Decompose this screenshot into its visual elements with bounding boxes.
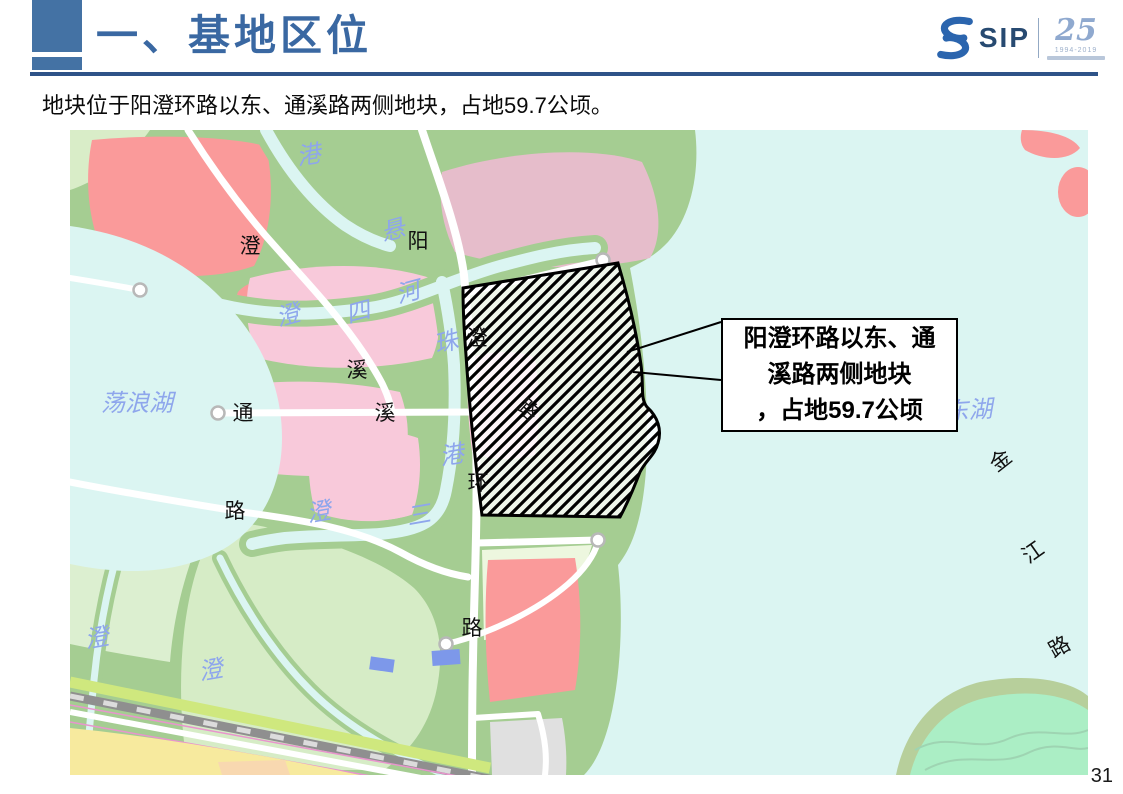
road-label: 路 bbox=[225, 499, 246, 523]
road-label: 溪 bbox=[375, 401, 396, 425]
anniversary-mark: 25 1994-2019 bbox=[1047, 16, 1105, 60]
logo-divider bbox=[1038, 18, 1039, 58]
road-label: 阳 bbox=[408, 229, 429, 253]
road-label: 路 bbox=[462, 616, 483, 640]
parcel-gray-south bbox=[490, 718, 566, 775]
callout-line: ，占地59.7公顷 bbox=[723, 393, 956, 429]
water-label: 荡浪湖 bbox=[101, 389, 177, 417]
anniversary-years: 1994-2019 bbox=[1055, 47, 1097, 54]
header-divider-line bbox=[30, 72, 1098, 76]
slide-subtitle: 地块位于阳澄环路以东、通溪路两侧地块，占地59.7公顷。 bbox=[42, 88, 613, 120]
anniversary-number: 25 bbox=[1055, 16, 1097, 46]
road-label: 澄 bbox=[467, 326, 488, 350]
sip-logo-text: SIP bbox=[979, 22, 1030, 54]
road-tongxi bbox=[218, 412, 478, 413]
slide-page: 一、基地区位 地块位于阳澄环路以东、通溪路两侧地块，占地59.7公顷。 SIP … bbox=[0, 0, 1123, 794]
sip-swoosh-icon bbox=[933, 16, 977, 60]
page-number: 31 bbox=[1091, 765, 1113, 788]
parcel-peach-sw bbox=[218, 760, 290, 775]
page-title: 一、基地区位 bbox=[96, 2, 372, 63]
location-map: 港悬四河澄珠荡浪湖港三澄澄澄阳澄东湖 澄阳溪通溪路路金江路 澄路环 bbox=[70, 130, 1088, 775]
site-callout-box: 阳澄环路以东、通 溪路两侧地块 ，占地59.7公顷 bbox=[721, 318, 958, 432]
road-label: 溪 bbox=[347, 358, 368, 382]
title-decoration-square bbox=[32, 0, 82, 52]
title-decoration-bar bbox=[32, 57, 82, 70]
callout-line: 溪路两侧地块 bbox=[723, 357, 956, 393]
callout-line: 阳澄环路以东、通 bbox=[723, 321, 956, 357]
road-site-south bbox=[476, 540, 598, 543]
road-label: 通 bbox=[233, 401, 254, 425]
road-label: 环 bbox=[468, 471, 489, 495]
road-label: 澄 bbox=[240, 234, 261, 258]
sip-logo: SIP 25 1994-2019 bbox=[933, 12, 1105, 64]
parcel-salmon-south bbox=[486, 558, 581, 702]
map-svg: 港悬四河澄珠荡浪湖港三澄澄澄阳澄东湖 澄阳溪通溪路路金江路 澄路环 bbox=[70, 130, 1088, 775]
anniversary-micro-text-bar bbox=[1047, 56, 1105, 60]
